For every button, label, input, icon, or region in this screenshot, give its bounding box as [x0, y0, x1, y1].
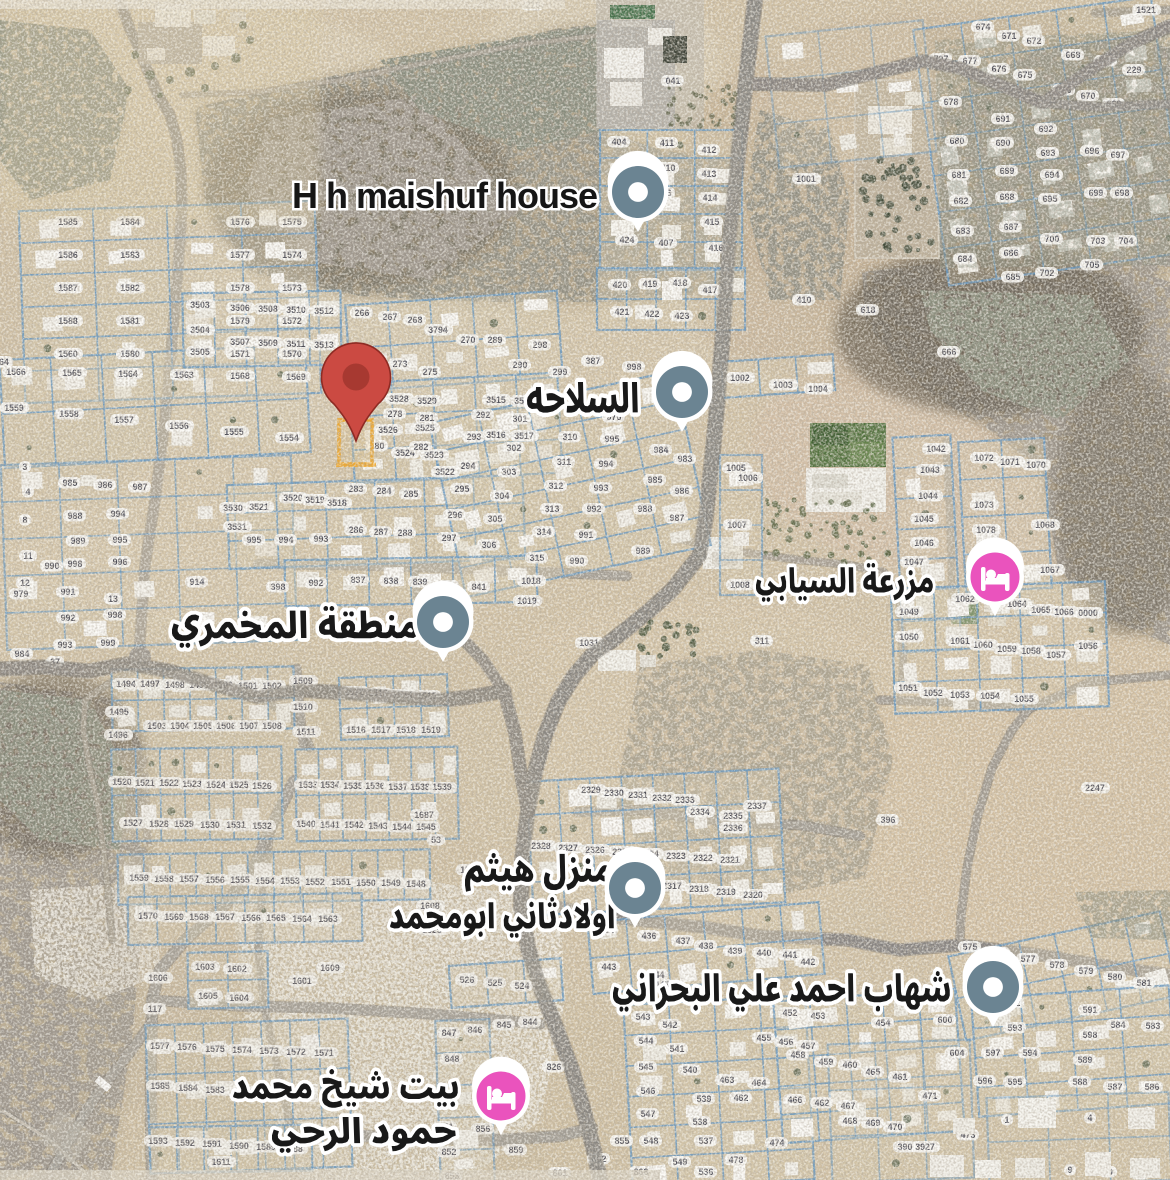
- svg-text:H h maishuf house: H h maishuf house: [292, 175, 597, 216]
